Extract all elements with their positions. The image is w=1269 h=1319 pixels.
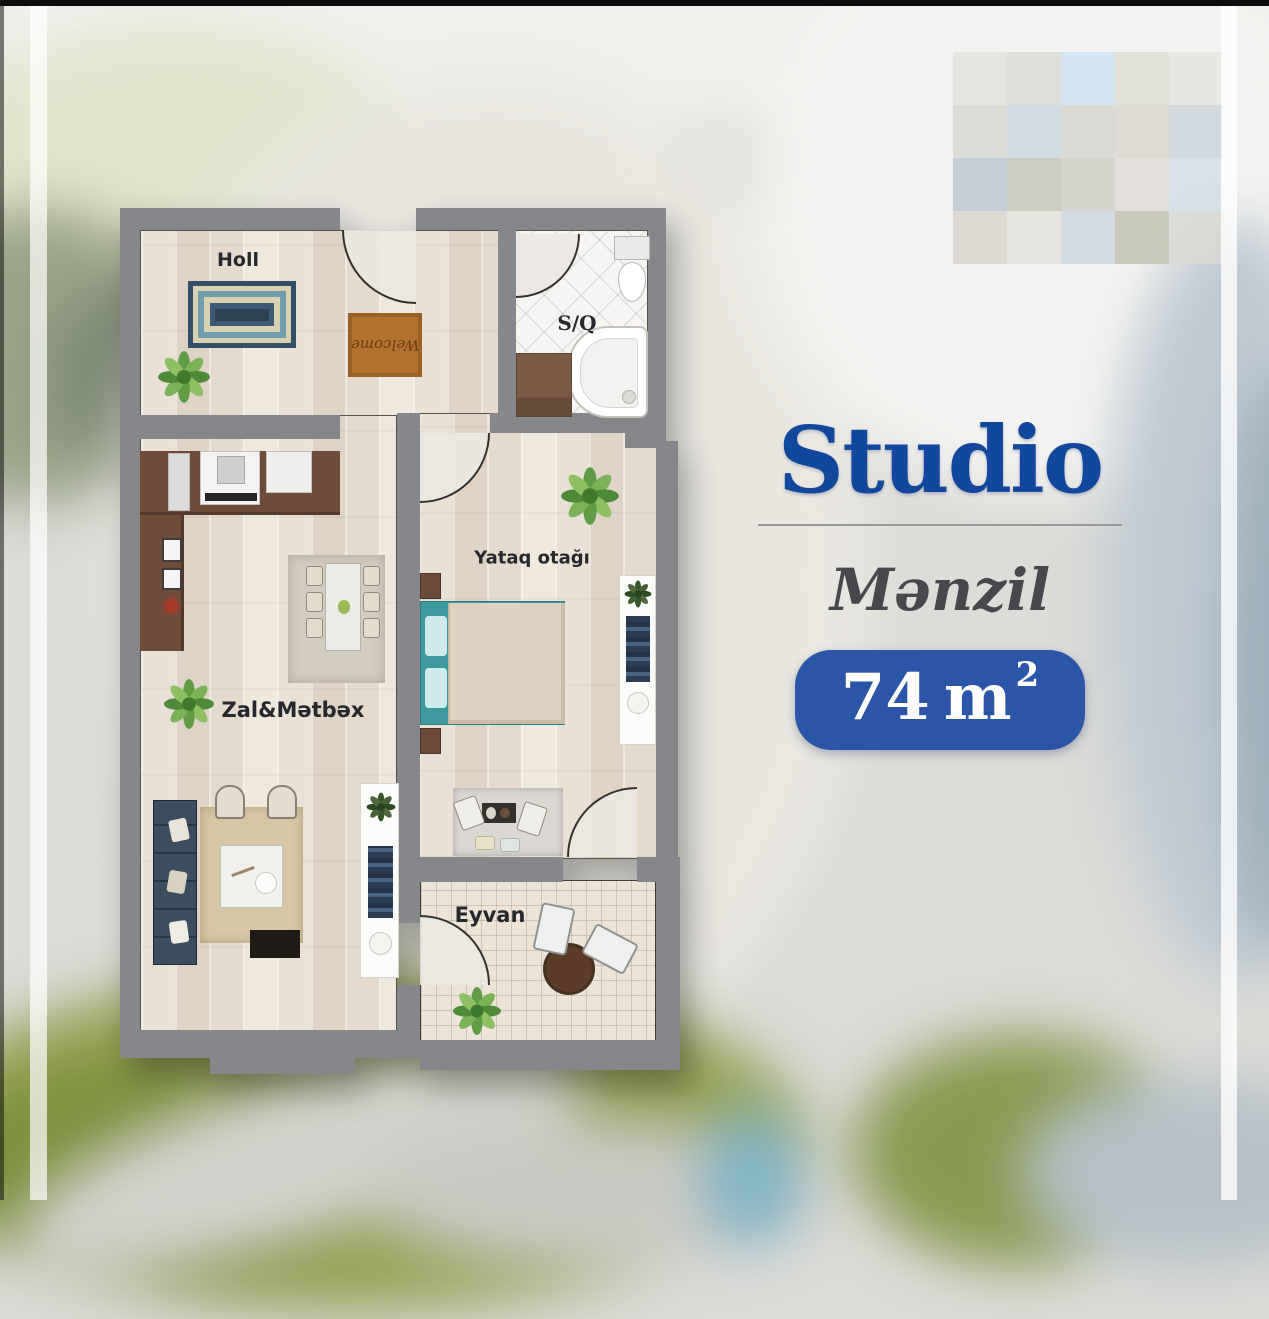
wall-bedroom-bottom-left <box>420 857 563 882</box>
bed-blanket <box>448 603 565 724</box>
tv-stand <box>250 930 300 958</box>
wall-hall-bathroom <box>498 230 516 415</box>
bathroom-vanity <box>516 353 572 417</box>
floor-plan: Welcome Holl S/Q Zal&Mətbəx <box>120 208 680 1074</box>
sofa <box>153 800 197 965</box>
hall-label: Holl <box>217 249 259 271</box>
left-edge-line <box>0 0 4 1200</box>
pixelated-blocks <box>953 52 1223 264</box>
bedroom-side-table <box>482 803 516 823</box>
coffee-table-branch <box>231 866 255 877</box>
wall-balcony-right <box>656 857 680 1070</box>
coffee-table <box>220 845 283 908</box>
plant-icon <box>556 466 624 526</box>
nightstand <box>420 728 441 754</box>
bed <box>420 601 565 725</box>
dining-chair <box>363 566 380 586</box>
doormat-text: Welcome <box>351 336 419 354</box>
shelf-books <box>626 616 650 682</box>
kitchen-microwave <box>162 568 182 590</box>
dining-chair <box>306 592 323 612</box>
wall-balcony-bottom <box>420 1040 680 1070</box>
wall-left <box>120 208 140 1058</box>
info-panel: Studio Mənzil 74 m 2 <box>758 414 1122 750</box>
shelf-plant-icon <box>366 792 396 822</box>
kitchen-sink-module <box>266 451 312 493</box>
bathroom-label: S/Q <box>557 311 596 335</box>
apartment-type-title: Studio <box>758 414 1122 506</box>
armchair <box>215 785 245 819</box>
bedroom-label: Yataq otağı <box>474 548 590 569</box>
area-badge: 74 m 2 <box>795 650 1085 750</box>
wall-bathroom-right <box>648 208 666 433</box>
kitchen-counter-marble <box>168 453 190 511</box>
dining-table <box>325 563 361 651</box>
wall-hall-bottom <box>140 415 340 439</box>
wall-top-right <box>416 208 666 230</box>
nightstand <box>420 573 441 599</box>
plant-icon <box>156 350 212 404</box>
wall-bedroom-right <box>656 441 678 857</box>
kitchen-oven <box>162 538 182 562</box>
living-kitchen-label: Zal&Mətbəx <box>222 698 365 722</box>
frame-line-left <box>30 6 47 1200</box>
dining-chair <box>306 618 323 638</box>
area-unit: m <box>944 666 1012 730</box>
sofa-pillow <box>168 817 190 842</box>
dining-centerpiece <box>338 600 350 614</box>
apartment-subtitle: Mənzil <box>758 556 1122 624</box>
wall-divider-upper <box>397 413 420 923</box>
living-shelf <box>360 783 399 978</box>
area-superscript: 2 <box>1016 658 1040 692</box>
bed-pillow <box>425 616 447 656</box>
wall-bedroom-bottom-right <box>637 857 658 882</box>
bedroom-cushion <box>500 838 520 852</box>
bedroom-cushion <box>475 836 495 850</box>
sofa-pillow <box>166 870 188 895</box>
dining-chair <box>306 566 323 586</box>
shelf-dish <box>627 692 649 714</box>
plant-icon <box>162 678 216 730</box>
bedroom-shelf <box>619 575 656 745</box>
toilet-tank <box>614 236 650 260</box>
kitchen-stove <box>200 451 260 505</box>
bathtub-drain <box>622 390 636 404</box>
area-value: 74 <box>841 666 930 730</box>
bed-pillow <box>425 668 447 708</box>
dining-chair <box>363 592 380 612</box>
divider-line <box>758 524 1122 526</box>
armchair <box>267 785 297 819</box>
frame-line-right <box>1221 6 1237 1200</box>
wall-living-bottom <box>120 1030 420 1058</box>
top-border-strip <box>0 0 1269 6</box>
hall-rug <box>188 281 296 348</box>
shelf-books <box>368 846 393 918</box>
coffee-table-decor <box>255 872 277 894</box>
balcony-label: Eyvan <box>455 903 526 927</box>
sofa-pillow <box>169 920 190 944</box>
plant-icon <box>451 986 503 1036</box>
welcome-doormat: Welcome <box>348 313 422 377</box>
wall-top-left <box>120 208 340 230</box>
shelf-plant-icon <box>624 580 652 608</box>
kitchen-pot <box>164 598 179 614</box>
bathtub <box>568 326 648 418</box>
dining-chair <box>363 618 380 638</box>
shelf-dish <box>369 932 392 955</box>
wall-living-bottom-step <box>210 1058 355 1074</box>
